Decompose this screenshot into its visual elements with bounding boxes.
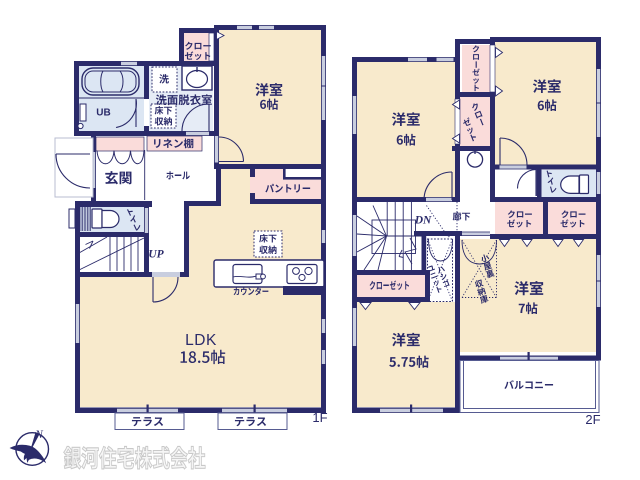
svg-text:DN: DN [414,215,432,227]
svg-text:1F: 1F [312,410,327,425]
svg-text:LDK: LDK [185,332,217,349]
svg-text:UB: UB [96,108,110,119]
svg-text:UP: UP [148,249,164,261]
svg-text:N: N [34,429,44,441]
svg-text:2F: 2F [585,412,600,427]
